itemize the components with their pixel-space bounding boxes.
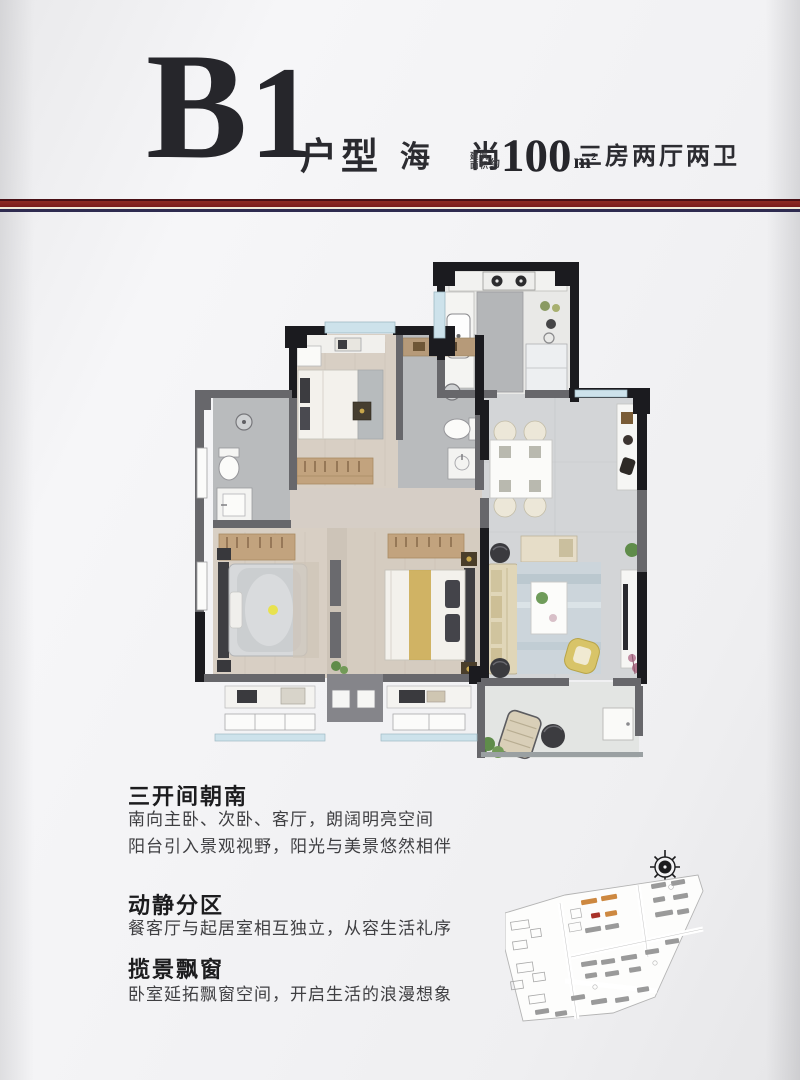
toilet [444,418,478,440]
wardrobe [388,534,464,558]
bedroom-second [385,534,477,676]
siteplan-map [505,866,710,1028]
sideboard [617,404,639,490]
bay-window-master [215,686,325,741]
section-3-heading: 揽景飘窗 [128,952,224,984]
header-divider [0,199,800,212]
bath-sink [448,448,477,479]
section-1-line-2: 阳台引入景观视野，阳光与美景悠然相伴 [128,833,452,860]
wardrobe [297,458,373,484]
sofa [488,564,518,674]
plant [625,543,639,557]
room-spec: 三房两厅两卫 [578,136,740,171]
side-table [541,724,565,748]
unit-code-letter: B [146,22,249,190]
unit-type-label: 户型 [300,126,382,180]
stove [483,272,535,290]
area-approx: 约 [490,155,500,170]
section-3-line-1: 卧室延拓飘窗空间，开启生活的浪漫想象 [128,981,452,1008]
flyer-page: B1 户型 海 尚 建筑 面积 约 100 m2 三房两厅两卫 [0,0,800,1080]
page-edge-shade-right [766,0,800,1080]
page-edge-shade-left [0,0,34,1080]
toilet [219,448,239,480]
coffee-table [531,582,567,634]
area-value: 100 [501,136,572,176]
area-prefix: 建筑 面积 [470,152,489,170]
bed [298,370,358,439]
section-1-line-1: 南向主卧、次卧、客厅，朗阔明亮空间 [128,806,434,833]
bed [385,568,475,662]
floorplan-image [185,262,650,772]
bay-window-second [381,686,477,741]
section-2-line-1: 餐客厅与起居室相互独立，从容生活礼序 [128,915,452,942]
unit-code: B1 [146,30,317,182]
